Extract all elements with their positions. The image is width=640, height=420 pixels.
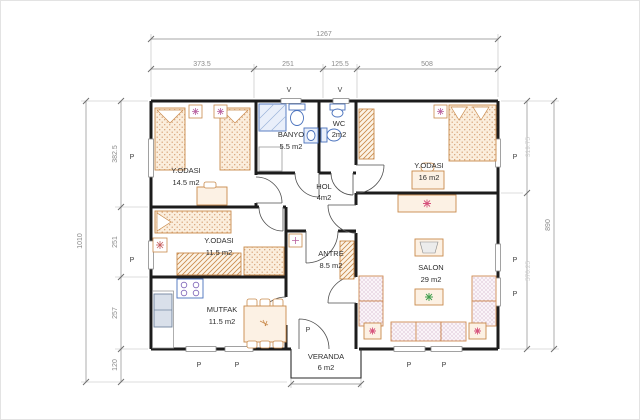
room-area-bedroom2: 16 m2 <box>419 173 440 182</box>
floor-plan-canvas: 1267 373.5 251 125.5 508 1010 382.5 251 … <box>0 0 640 420</box>
dim-left-seg-3: 257 <box>112 307 119 319</box>
sofa-icon <box>416 322 441 341</box>
room-area-bedroom1: 14.5 m2 <box>172 178 199 187</box>
room-area-bathroom: 5.5 m2 <box>280 142 303 151</box>
sofa-icon <box>472 276 496 301</box>
door-arc-wc <box>331 173 353 195</box>
window-label: P <box>306 327 311 334</box>
dim-top-seg-2: 251 <box>282 61 294 68</box>
dim-right-total: 890 <box>545 219 552 231</box>
chair-icon <box>247 341 257 348</box>
sofa-icon <box>359 276 383 301</box>
sofa-icon <box>359 301 383 326</box>
window-label: P <box>197 362 202 369</box>
plant-icon <box>423 200 431 208</box>
room-area-bedroom3: 11.5 m2 <box>206 248 233 257</box>
toilet-tank-icon <box>289 104 305 110</box>
room-label-kitchen: MUTFAK <box>207 305 237 314</box>
door-arc-bedroom2 <box>356 165 384 193</box>
room-label-bedroom3: Y.ODASI <box>204 236 233 245</box>
window-label: P <box>513 154 518 161</box>
door-arc-bedroom3 <box>259 207 283 231</box>
window-label: P <box>513 257 518 264</box>
vent-label: V <box>338 87 343 94</box>
plant-icon <box>425 293 433 301</box>
dim-left-total: 1010 <box>77 233 84 249</box>
dim-right-seg-1: 319.75 <box>525 137 532 157</box>
room-label-bedroom1: Y.ODASI <box>171 166 200 175</box>
room-area-veranda: 6 m2 <box>318 363 335 372</box>
window-label: P <box>235 362 240 369</box>
fridge-icon <box>154 294 172 327</box>
wardrobe-icon <box>359 109 374 159</box>
door-arc-salon-upper <box>328 205 356 233</box>
room-area-kitchen: 11.5 m2 <box>209 317 236 326</box>
vent-window-bathroom <box>281 99 301 104</box>
wardrobe-icon <box>340 241 354 279</box>
room-label-wc: WC <box>333 119 346 128</box>
tv-icon <box>420 242 438 253</box>
plant-icon <box>369 328 376 335</box>
dim-left-seg-4: 120 <box>112 359 119 371</box>
room-label-salon: SALON <box>418 263 443 272</box>
window-left-bedroom1 <box>149 139 154 177</box>
window-bottom-kitchen-1 <box>186 347 216 352</box>
window-label: P <box>130 257 135 264</box>
sofa-icon <box>441 322 466 341</box>
room-area-hall: 4m2 <box>317 193 332 202</box>
lamp-icon <box>156 241 164 249</box>
chair-icon <box>204 182 216 188</box>
window-bottom-salon-1 <box>394 347 425 352</box>
plant-icon <box>474 328 481 335</box>
door-arc-bedroom1 <box>256 177 282 203</box>
window-label: P <box>442 362 447 369</box>
window-right-salon-1 <box>496 244 501 271</box>
room-area-antre: 8.5 m2 <box>320 261 343 270</box>
bed-icon <box>244 247 284 275</box>
floor-plan-drawing: 1267 373.5 251 125.5 508 1010 382.5 251 … <box>1 1 640 420</box>
room-area-wc: 2m2 <box>332 130 347 139</box>
vent-label: V <box>287 87 292 94</box>
dim-top-seg-4: 508 <box>421 61 433 68</box>
window-label: P <box>513 291 518 298</box>
chair-icon <box>273 341 283 348</box>
room-label-bathroom: BANYO <box>278 130 304 139</box>
lamp-icon <box>437 108 444 115</box>
door-arc-hall-entry <box>306 231 338 263</box>
desk-icon <box>197 187 227 205</box>
washbasin-bowl <box>307 131 315 141</box>
lamp-icon <box>217 108 224 115</box>
dim-top-total: 1267 <box>316 31 332 38</box>
door-arc-entrance <box>299 319 329 349</box>
room-label-bedroom2: Y.ODASI <box>414 161 443 170</box>
room-area-salon: 29 m2 <box>421 275 442 284</box>
dim-top-seg-3: 125.5 <box>331 61 349 68</box>
vent-window-wc <box>333 99 349 104</box>
room-label-hall: HOL <box>316 182 331 191</box>
stove-icon <box>177 279 203 298</box>
dim-left-seg-1: 382.5 <box>112 145 119 163</box>
window-label: P <box>130 154 135 161</box>
door-arc-salon-lower <box>328 277 356 303</box>
dim-left-seg-2: 251 <box>112 236 119 248</box>
lamp-icon <box>192 108 199 115</box>
window-bottom-salon-2 <box>431 347 462 352</box>
sink-bowl <box>332 109 343 117</box>
sofa-icon <box>391 322 416 341</box>
room-bedroom1-furniture <box>155 105 250 205</box>
dim-right-seg-2: 570.25 <box>525 261 532 281</box>
room-label-veranda: VERANDA <box>308 352 344 361</box>
room-label-antre: ANTRE <box>318 249 343 258</box>
window-label: P <box>407 362 412 369</box>
dim-top-seg-1: 373.5 <box>193 61 211 68</box>
toilet-tank-icon <box>321 128 327 142</box>
sofa-icon <box>472 301 496 326</box>
toilet-icon <box>291 111 304 126</box>
chair-icon <box>260 341 270 348</box>
